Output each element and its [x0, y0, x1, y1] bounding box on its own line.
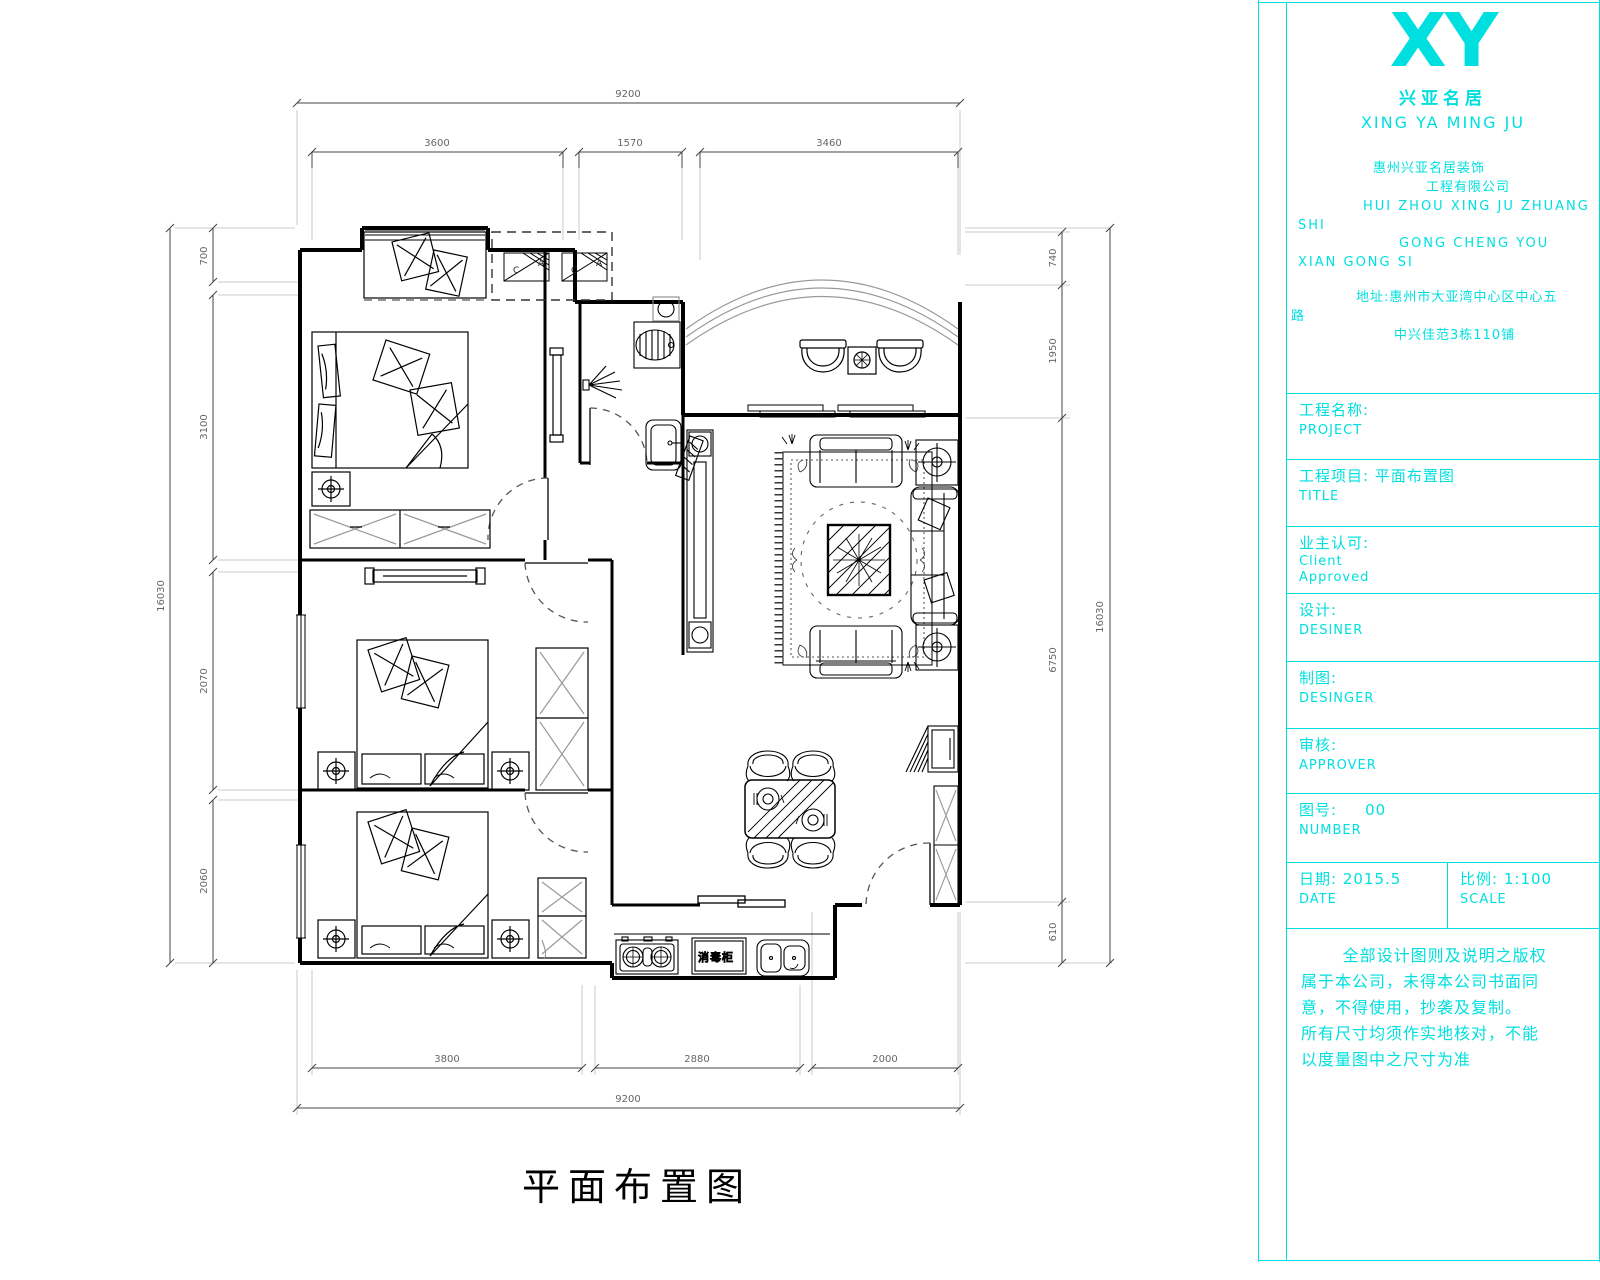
field-label: 业主认可: — [1299, 532, 1599, 553]
dim-right-1: 740 — [1048, 248, 1059, 267]
field-label: 设计: — [1299, 599, 1599, 620]
bay-seating — [800, 340, 923, 374]
field-draftsman: 制图: DESINGER — [1287, 661, 1599, 728]
company-line: 惠州兴亚名居装饰 — [1373, 160, 1599, 179]
field-sublabel: DESINGER — [1299, 691, 1599, 706]
exterior-walls — [300, 228, 960, 978]
shoe-cabinet — [934, 786, 958, 904]
door-bedroom2 — [525, 563, 588, 622]
dim-top-3: 3460 — [816, 138, 841, 149]
sofa-three-seat-right — [911, 487, 959, 625]
dim-bottom-1: 3800 — [434, 1054, 459, 1065]
sofa-two-seat-bottom — [810, 626, 902, 678]
window-bedroom3 — [296, 845, 306, 938]
wall-cabinet — [906, 726, 958, 772]
bathroom-fixtures — [583, 297, 681, 470]
dim-top-1: 3600 — [424, 138, 449, 149]
field-label: 审核: — [1299, 734, 1599, 755]
nightstand-2a — [318, 752, 355, 790]
note-line: 全部设计图则及说明之版权 — [1301, 943, 1591, 969]
field-label: 制图: — [1299, 667, 1599, 688]
appliance-letter-3: C — [571, 266, 577, 276]
note-line: 意，不得使用，抄袭及复制。 — [1301, 995, 1591, 1021]
dim-bottom-3: 2000 — [872, 1054, 897, 1065]
window-living-2 — [838, 405, 913, 411]
field-sublabel: DATE — [1299, 892, 1447, 907]
bed-double-1 — [312, 332, 468, 468]
window-bedroom2 — [296, 615, 306, 708]
utility-balcony: C A C A — [492, 232, 612, 300]
kitchen-fixtures: 消毒柜 — [614, 934, 830, 976]
dim-bottom-overall: 9200 — [615, 1094, 640, 1105]
bay-window-arc — [686, 280, 958, 345]
field-sublabel: NUMBER — [1299, 823, 1599, 838]
bedroom1-furniture — [310, 232, 563, 548]
note-line: 所有尺寸均须作实地核对，不能 — [1301, 1021, 1591, 1047]
door-bathroom — [590, 408, 647, 465]
floor-plan-area: 9200 3600 1570 3460 16030 700 3100 2070 … — [0, 0, 1255, 1280]
appliance-letter-1: C — [513, 266, 519, 276]
armchair-right — [877, 340, 923, 372]
company-line: 工程有限公司 — [1426, 179, 1599, 198]
company-line: HUI ZHOU XING JU ZHUANG — [1363, 198, 1599, 217]
dining-chair — [791, 838, 835, 868]
field-scale: 比例: 1:100 SCALE — [1448, 863, 1599, 928]
field-date-scale: 日期: 2015.5 DATE 比例: 1:100 SCALE — [1287, 862, 1599, 928]
bedroom3-furniture — [318, 810, 586, 958]
wardrobe-3 — [538, 878, 586, 958]
bedroom2-furniture — [318, 568, 588, 790]
field-sublabel: TITLE — [1299, 489, 1599, 504]
entry-cabinets — [906, 726, 958, 904]
side-table-top — [916, 440, 958, 485]
tv-bedroom2 — [365, 568, 485, 584]
nightstand-2b — [492, 752, 529, 790]
appliance-letter-2: A — [538, 259, 545, 269]
dim-left-1: 700 — [199, 246, 210, 265]
wardrobe-1 — [310, 510, 490, 548]
dim-left-3: 2070 — [199, 668, 210, 693]
field-sublabel: Client — [1299, 554, 1599, 569]
title-block: XY 兴亚名居 XING YA MING JU 惠州兴亚名居装饰 工程有限公司 … — [1258, 0, 1600, 1262]
window-living-1 — [748, 405, 823, 411]
nightstand-3a — [318, 920, 355, 958]
sofa-two-seat-top — [810, 435, 902, 487]
coffee-table — [828, 525, 890, 595]
drawing-number: 00 — [1365, 801, 1386, 819]
nightstand-3b — [492, 920, 529, 958]
brand-name-cn: 兴亚名居 — [1287, 84, 1599, 109]
company-address: 地址:惠州市大亚湾中心区中心五 — [1356, 289, 1599, 308]
mirror-cabinet — [550, 348, 563, 442]
dining-set — [745, 751, 835, 868]
grass-tuft — [782, 434, 919, 672]
dim-top-overall: 9200 — [615, 89, 640, 100]
nightstand-1 — [312, 472, 350, 506]
field-number: 图号:00 NUMBER — [1287, 793, 1599, 862]
field-project: 工程名称: PROJECT — [1287, 393, 1599, 459]
field-label: 工程名称: — [1299, 399, 1599, 420]
dim-right-2: 1950 — [1048, 338, 1059, 363]
door-entry — [866, 843, 930, 905]
company-line: GONG CHENG YOU — [1399, 235, 1599, 254]
dining-table — [745, 780, 835, 838]
appliance-letter-4: A — [596, 259, 603, 269]
field-label: 日期: — [1299, 870, 1337, 888]
field-title: 工程项目: 平面布置图 TITLE — [1287, 459, 1599, 526]
drawing-sheet: 9200 3600 1570 3460 16030 700 3100 2070 … — [0, 0, 1600, 1280]
field-sublabel: PROJECT — [1299, 423, 1599, 438]
side-table-bottom — [916, 625, 958, 670]
company-address: 路 — [1291, 308, 1599, 327]
brand-name-en: XING YA MING JU — [1287, 113, 1599, 132]
note-line: 属于本公司，未得本公司书面同 — [1301, 969, 1591, 995]
dining-chair — [791, 751, 835, 781]
company-address: 中兴佳范3栋110铺 — [1394, 327, 1599, 346]
field-approver: 审核: APPROVER — [1287, 728, 1599, 793]
dim-right-4: 610 — [1048, 922, 1059, 941]
door-kitchen-sliding — [698, 896, 785, 907]
field-label: 图号: — [1299, 801, 1337, 819]
scale-value: 1:100 — [1504, 870, 1552, 888]
bay-table — [848, 347, 876, 374]
dim-bottom-2: 2880 — [684, 1054, 709, 1065]
company-logo: XY — [1287, 4, 1599, 78]
bed-double-2 — [357, 638, 488, 788]
dim-left-2: 3100 — [199, 414, 210, 439]
field-sublabel: APPROVER — [1299, 758, 1599, 773]
door-bedroom1 — [488, 478, 548, 540]
disinfect-cabinet-label: 消毒柜 — [698, 950, 734, 964]
dim-right-3: 6750 — [1048, 647, 1059, 672]
dim-top-2: 1570 — [617, 138, 642, 149]
date-value: 2015.5 — [1343, 870, 1402, 888]
company-line: SHI — [1298, 217, 1599, 236]
dim-right-overall: 16030 — [1095, 601, 1106, 633]
wardrobe-2 — [536, 648, 588, 790]
field-sublabel: SCALE — [1460, 892, 1599, 907]
bed-double-3 — [357, 810, 488, 958]
table-plant — [833, 534, 885, 586]
field-sublabel: DESINER — [1299, 623, 1599, 638]
dining-chair — [746, 838, 790, 868]
stove-icon — [616, 937, 678, 974]
floor-plan: 9200 3600 1570 3460 16030 700 3100 2070 … — [0, 0, 1255, 1280]
field-date: 日期: 2015.5 DATE — [1287, 863, 1448, 928]
dim-left-overall: 16030 — [156, 580, 167, 612]
field-label: 工程项目: 平面布置图 — [1299, 465, 1599, 486]
note-line: 以度量图中之尺寸为准 — [1301, 1047, 1591, 1073]
plan-title: 平面布置图 — [522, 1165, 752, 1209]
field-sublabel: Approved — [1299, 570, 1599, 585]
field-client-approved: 业主认可: Client Approved — [1287, 526, 1599, 593]
sink-icon — [757, 940, 809, 976]
dining-chair — [746, 751, 790, 781]
shower-icon — [583, 366, 622, 398]
field-label: 比例: — [1460, 870, 1498, 888]
living-room-furniture — [779, 434, 959, 678]
field-designer: 设计: DESINER — [1287, 593, 1599, 661]
window-seat — [364, 232, 486, 300]
armchair-left — [800, 340, 846, 372]
company-line: XIAN GONG SI — [1298, 254, 1599, 273]
door-bedroom3 — [525, 793, 588, 852]
dim-left-4: 2060 — [199, 868, 210, 893]
toilet-icon — [634, 322, 680, 368]
copyright-notes: 全部设计图则及说明之版权 属于本公司，未得本公司书面同 意，不得使用，抄袭及复制… — [1287, 928, 1599, 1262]
